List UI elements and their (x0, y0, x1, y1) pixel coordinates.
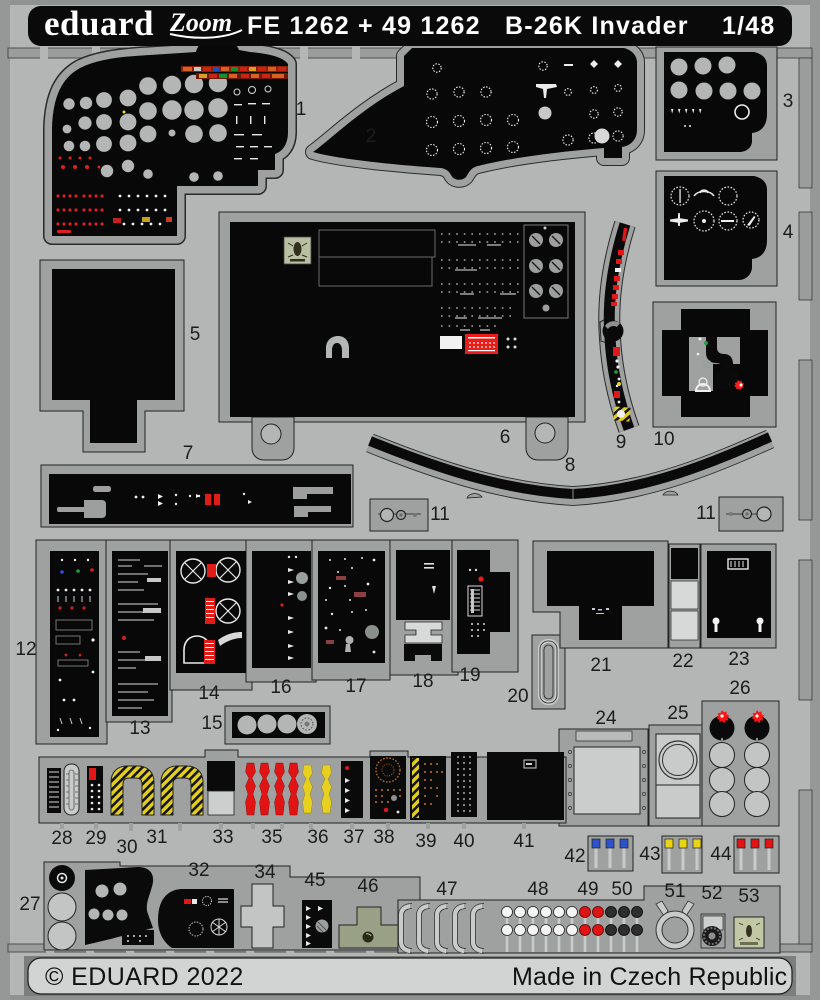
svg-text:3: 3 (783, 91, 794, 112)
svg-text:21: 21 (590, 655, 611, 676)
svg-text:48: 48 (527, 879, 548, 900)
svg-text:27: 27 (19, 894, 40, 915)
svg-text:7: 7 (183, 443, 194, 464)
svg-text:33: 33 (212, 827, 233, 848)
svg-text:36: 36 (307, 827, 328, 848)
svg-text:1: 1 (296, 99, 307, 120)
svg-text:5: 5 (190, 324, 201, 345)
svg-text:50: 50 (611, 879, 632, 900)
svg-text:B-26K Invader: B-26K Invader (505, 12, 689, 40)
svg-text:39: 39 (415, 831, 436, 852)
svg-text:Made in Czech Republic: Made in Czech Republic (512, 963, 787, 991)
svg-text:13: 13 (129, 718, 150, 739)
svg-text:52: 52 (701, 883, 722, 904)
svg-text:22: 22 (672, 651, 693, 672)
svg-text:23: 23 (728, 649, 749, 670)
svg-text:30: 30 (116, 837, 137, 858)
svg-text:14: 14 (198, 683, 220, 704)
svg-text:19: 19 (459, 665, 480, 686)
svg-text:29: 29 (85, 828, 106, 849)
svg-text:40: 40 (453, 831, 474, 852)
svg-text:44: 44 (710, 844, 732, 865)
svg-text:34: 34 (254, 862, 276, 883)
svg-text:38: 38 (373, 827, 394, 848)
svg-text:12: 12 (15, 639, 36, 660)
svg-text:16: 16 (270, 677, 291, 698)
svg-text:43: 43 (639, 844, 660, 865)
svg-text:Zoom: Zoom (169, 8, 232, 37)
svg-text:6: 6 (500, 427, 511, 448)
svg-text:42: 42 (564, 846, 585, 867)
svg-text:41: 41 (513, 831, 534, 852)
svg-text:45: 45 (304, 870, 325, 891)
svg-text:49: 49 (577, 879, 598, 900)
svg-text:28: 28 (51, 828, 72, 849)
svg-text:15: 15 (201, 713, 222, 734)
svg-text:10: 10 (653, 429, 674, 450)
svg-text:18: 18 (412, 671, 433, 692)
svg-text:11: 11 (430, 504, 450, 525)
svg-text:46: 46 (357, 876, 378, 897)
svg-text:25: 25 (667, 703, 688, 724)
svg-text:2: 2 (366, 126, 377, 147)
svg-text:eduard: eduard (44, 4, 154, 43)
svg-text:24: 24 (595, 708, 617, 729)
svg-text:8: 8 (565, 455, 576, 476)
svg-text:35: 35 (261, 827, 282, 848)
svg-text:37: 37 (343, 827, 364, 848)
svg-text:53: 53 (738, 886, 759, 907)
svg-text:26: 26 (729, 678, 750, 699)
svg-text:17: 17 (345, 676, 366, 697)
svg-text:FE 1262 + 49 1262: FE 1262 + 49 1262 (247, 12, 481, 40)
svg-text:9: 9 (616, 432, 627, 453)
svg-text:32: 32 (188, 860, 209, 881)
svg-text:31: 31 (146, 827, 167, 848)
svg-text:1/48: 1/48 (722, 12, 775, 40)
svg-text:51: 51 (664, 881, 685, 902)
svg-text:© EDUARD 2022: © EDUARD 2022 (45, 963, 244, 991)
svg-text:20: 20 (507, 686, 528, 707)
svg-text:11: 11 (696, 503, 716, 524)
svg-text:4: 4 (783, 222, 794, 243)
svg-text:47: 47 (436, 879, 457, 900)
